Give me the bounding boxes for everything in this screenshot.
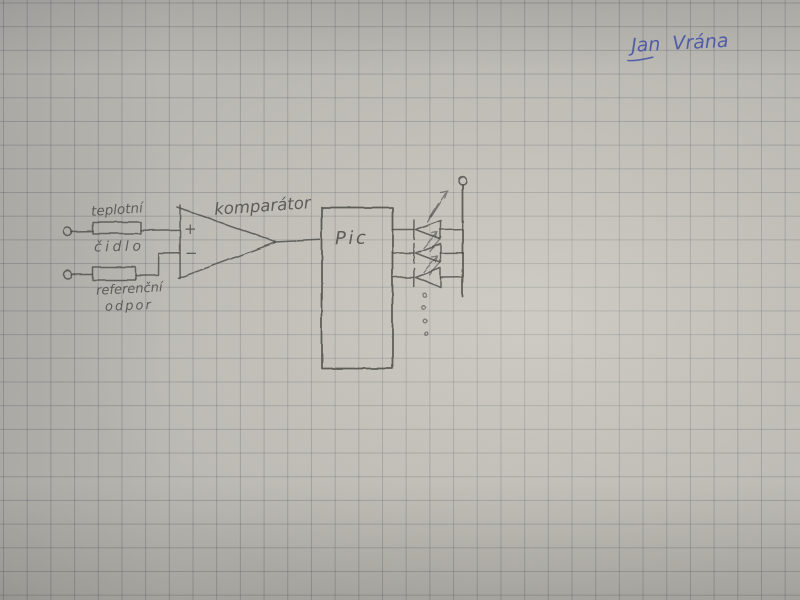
schematic-drawing: teplotní čidlo referenční odpor komparát… [0,0,800,600]
photo-grain-texture [0,0,800,600]
graph-paper-photo: teplotní čidlo referenční odpor komparát… [0,0,800,600]
